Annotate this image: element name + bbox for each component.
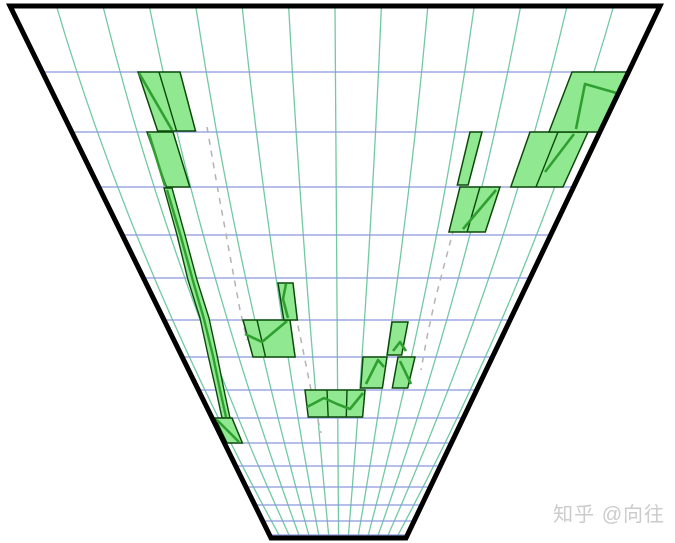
vertical-gridline (242, 6, 319, 538)
vertical-gridline (358, 6, 428, 538)
vertical-gridline (289, 6, 329, 538)
dashed-trendline (207, 127, 247, 340)
watermark: 知乎 @向往 (553, 498, 665, 527)
vertical-gridline (335, 6, 339, 538)
candle-body (243, 320, 295, 357)
candle-body (361, 357, 387, 388)
perspective-candlestick-chart: 知乎 @向往 (0, 0, 675, 543)
vertical-gridline (196, 6, 310, 538)
candle-body (549, 72, 629, 132)
chart-content (40, 6, 630, 538)
candle-divider (346, 390, 347, 417)
candle-body (457, 132, 482, 185)
funnel-chart-canvas (0, 0, 675, 543)
vertical-gridline (387, 6, 567, 538)
vertical-gridline (103, 6, 290, 538)
vertical-gridline (348, 6, 381, 538)
